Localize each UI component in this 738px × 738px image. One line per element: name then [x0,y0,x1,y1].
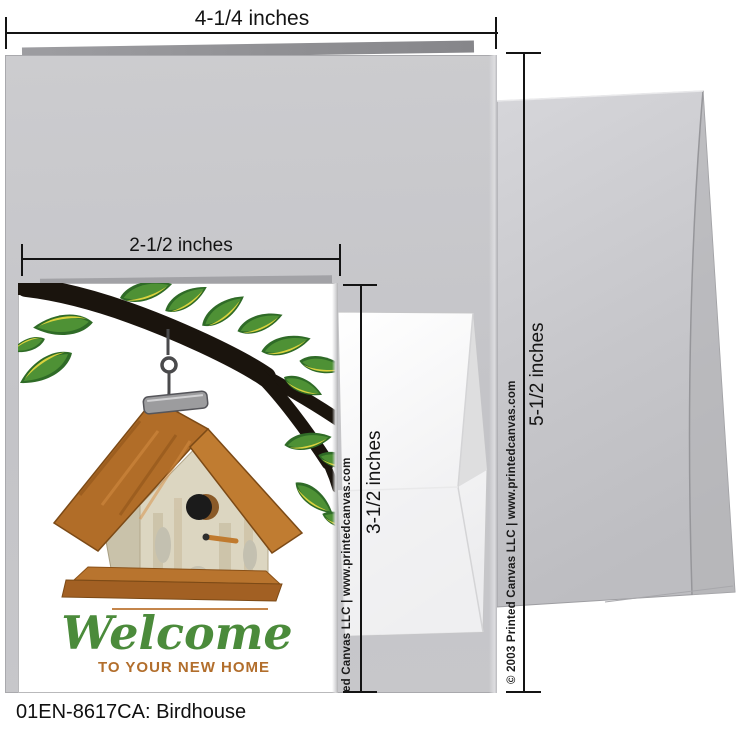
birdhouse-artwork: Welcome TO YOUR NEW HOME [18,283,338,693]
dim-line-card-width [6,32,498,34]
dim-line-front-height [360,284,362,693]
dim-line-front-width [22,258,341,260]
greeting-script: Welcome [61,606,292,660]
dim-tick [339,244,341,276]
dim-tick [495,17,497,49]
card-edge-watermark: ed Canvas LLC | www.printedcanvas.com [341,457,353,692]
dim-tick [21,244,23,276]
card-front-right-edge [332,283,338,693]
dim-label-front-width: 2-1/2 inches [81,235,281,257]
product-photo: Welcome TO YOUR NEW HOME 4-1/4 inches 2-… [0,0,738,738]
dim-tick [506,52,541,54]
dim-label-card-width: 4-1/4 inches [152,7,352,31]
greeting-subtitle: TO YOUR NEW HOME [98,659,270,676]
dim-label-front-height: 3-1/2 inches [364,430,386,534]
dim-tick [343,284,377,286]
dim-tick [506,691,541,693]
card-front: Welcome TO YOUR NEW HOME [18,283,338,693]
birdhouse [54,391,302,601]
entrance-hole [186,494,212,520]
base-lower [62,580,282,601]
dim-line-card-height [523,53,525,693]
envelope-watermark: © 2003 Printed Canvas LLC | www.printedc… [506,380,518,684]
product-caption: 01EN-8617CA: Birdhouse [16,701,246,724]
metal-roof-cap [143,391,208,415]
dim-label-card-height: 5-1/2 inches [527,322,549,426]
dim-tick [5,17,7,49]
perch-end [203,534,210,541]
